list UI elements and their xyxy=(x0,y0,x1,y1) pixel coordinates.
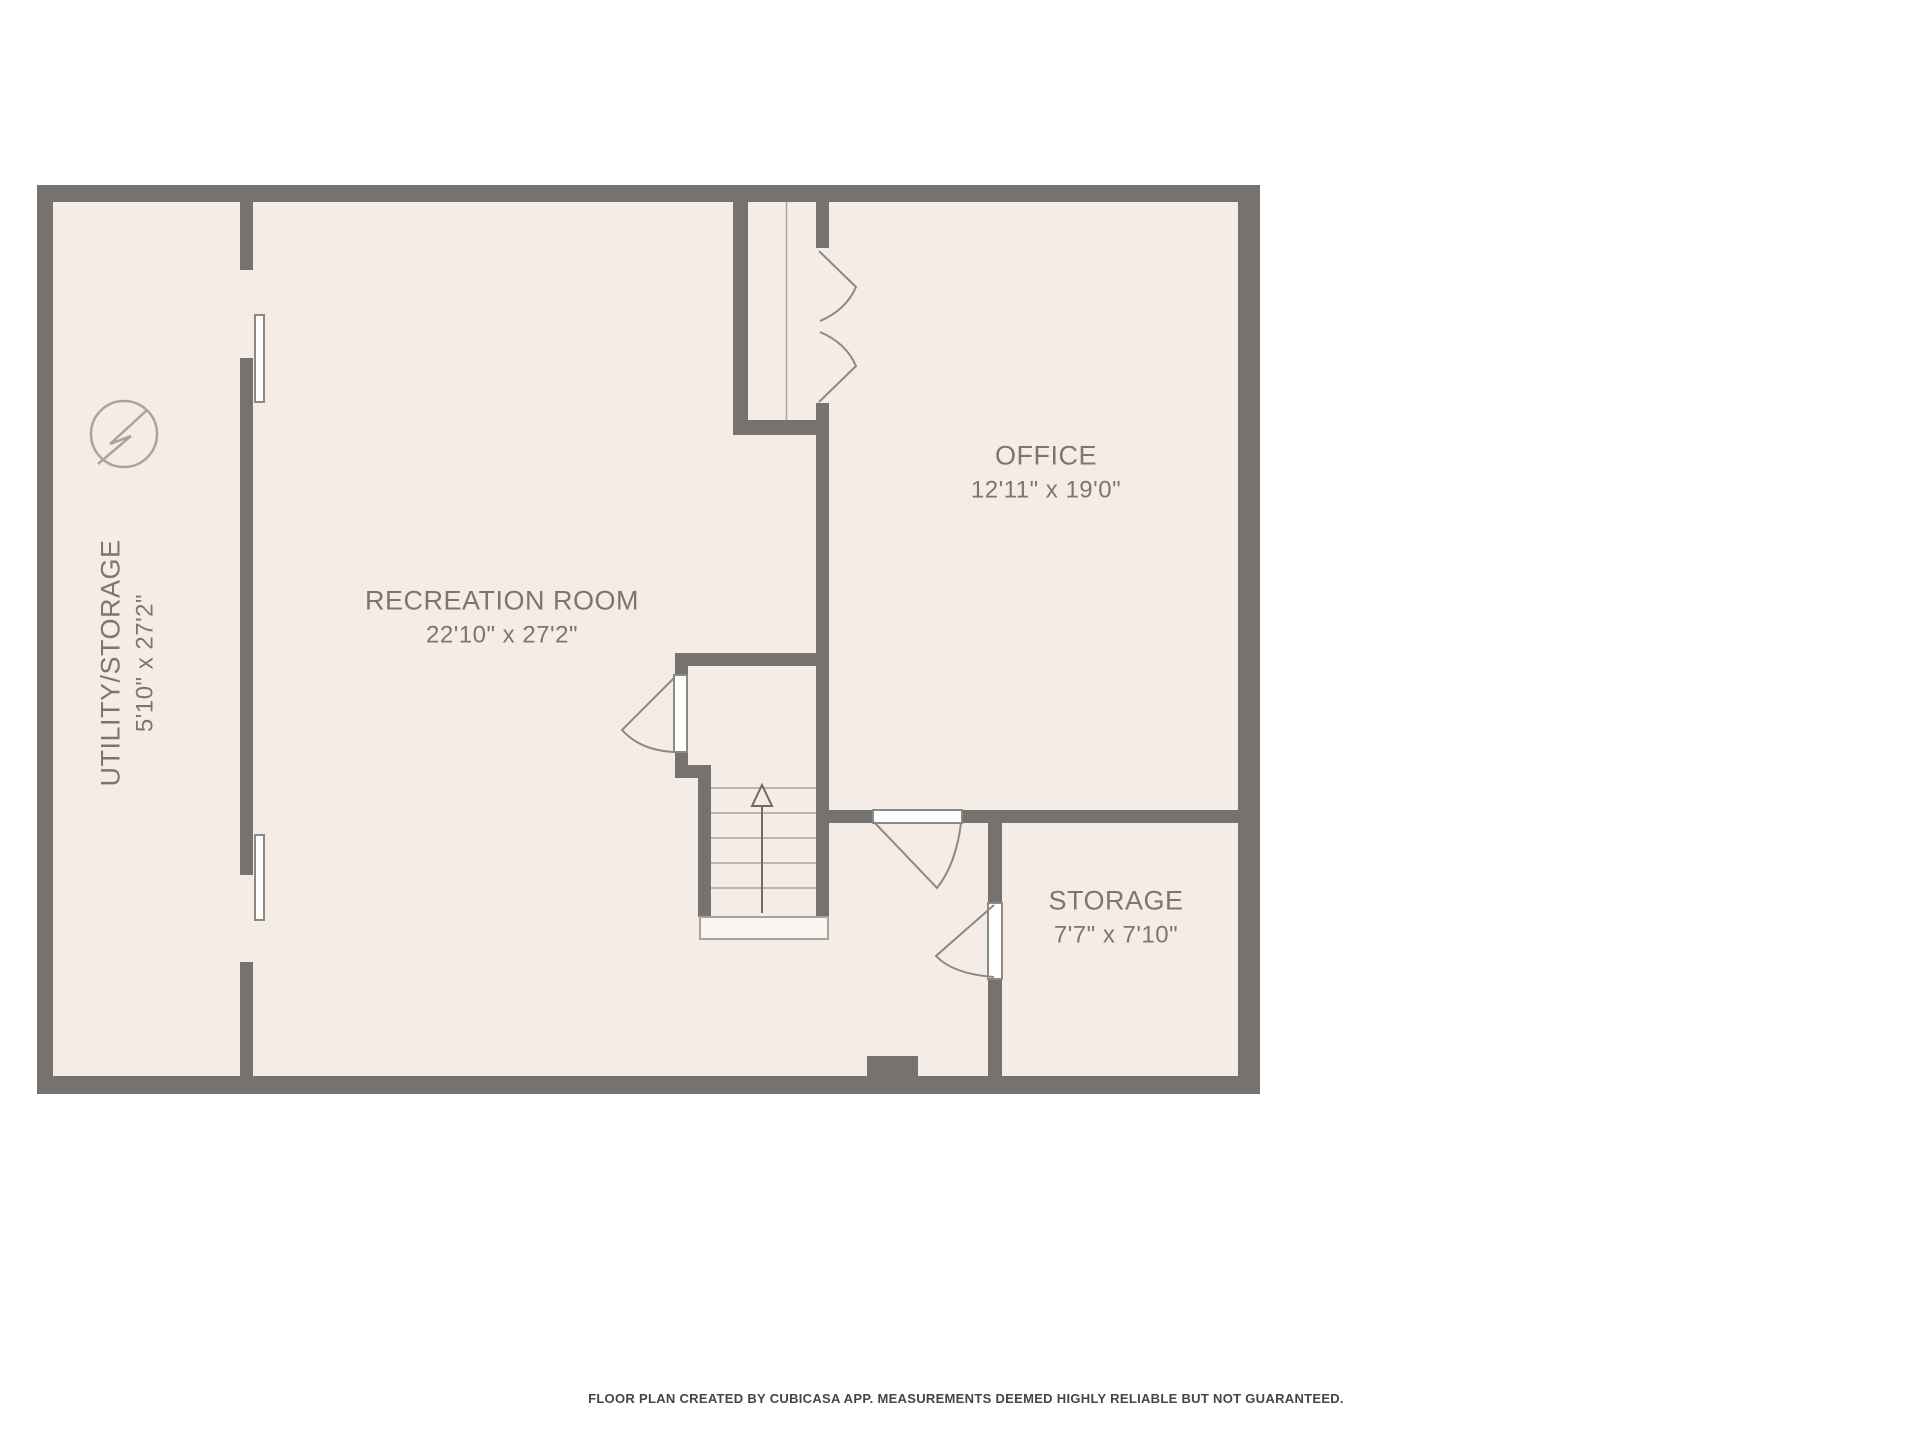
sliding-door-lower xyxy=(255,835,264,920)
room-name: UTILITY/STORAGE xyxy=(93,539,129,786)
room-name: OFFICE xyxy=(971,438,1121,474)
room-label-office: OFFICE 12'11" x 19'0" xyxy=(971,438,1121,505)
room-dimensions: 12'11" x 19'0" xyxy=(971,474,1121,506)
room-name: RECREATION ROOM xyxy=(365,583,639,619)
room-name: STORAGE xyxy=(1048,883,1183,919)
sliding-door-upper xyxy=(255,315,264,402)
room-label-storage: STORAGE 7'7" x 7'10" xyxy=(1048,883,1183,950)
stair-landing xyxy=(700,917,828,939)
hall-door-leaf xyxy=(873,810,962,823)
floorplan-canvas: UTILITY/STORAGE 5'10" x 27'2" RECREATION… xyxy=(0,0,1920,1440)
room-dimensions: 5'10" x 27'2" xyxy=(129,539,161,786)
footer-disclaimer: FLOOR PLAN CREATED BY CUBICASA APP. MEAS… xyxy=(588,1391,1344,1406)
room-label-recreation-room: RECREATION ROOM 22'10" x 27'2" xyxy=(365,583,639,650)
floor-area xyxy=(37,185,1260,1094)
recreation-door-leaf xyxy=(674,675,687,752)
storage-door-leaf xyxy=(988,903,1002,979)
room-dimensions: 22'10" x 27'2" xyxy=(365,619,639,651)
floorplan-drawing xyxy=(0,0,1920,1440)
room-label-utility-storage: UTILITY/STORAGE 5'10" x 27'2" xyxy=(93,539,160,786)
room-dimensions: 7'7" x 7'10" xyxy=(1048,919,1183,951)
